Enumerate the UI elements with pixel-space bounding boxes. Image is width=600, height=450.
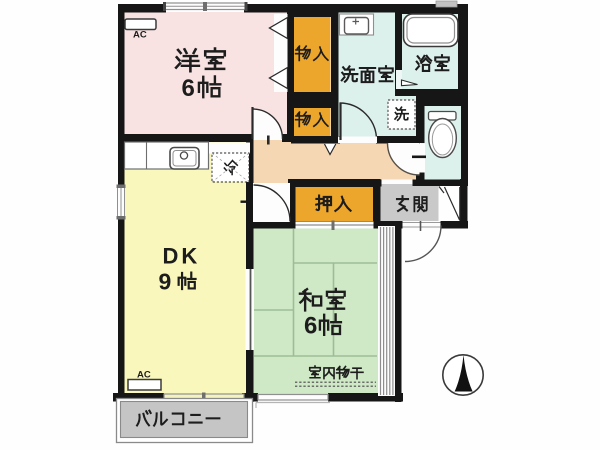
svg-text:AC: AC	[137, 370, 151, 381]
svg-text:DK: DK	[163, 244, 201, 269]
svg-text:6: 6	[304, 313, 317, 340]
svg-text:9: 9	[159, 269, 172, 295]
svg-text:6: 6	[182, 75, 195, 102]
svg-text:AC: AC	[133, 30, 147, 41]
